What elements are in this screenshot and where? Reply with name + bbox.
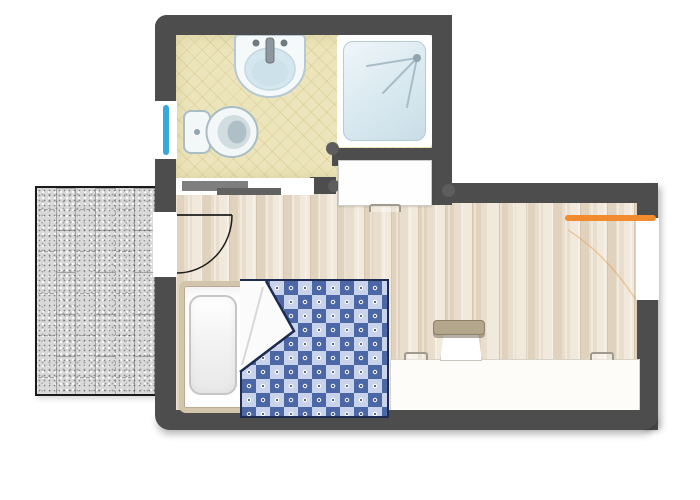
wall-bottom	[155, 410, 658, 430]
pillow	[189, 295, 237, 395]
wall-end-cap	[442, 184, 455, 197]
wall-end-cap	[326, 142, 339, 155]
shower	[337, 35, 432, 147]
blanket-fold	[233, 275, 299, 375]
main-window	[636, 218, 659, 300]
sliding-door-panel-inner	[217, 188, 281, 195]
patio-tile-column	[37, 188, 57, 394]
sink	[233, 35, 307, 101]
chair-backrest	[433, 320, 485, 335]
bathroom-window-glass	[163, 105, 169, 155]
entry-door-opening	[153, 212, 177, 277]
desk	[390, 359, 640, 410]
wall-bathroom-top	[155, 15, 452, 35]
chair-seat	[440, 334, 482, 361]
patio-tile-column	[76, 188, 96, 394]
wall-main-top	[450, 183, 658, 203]
shower-spray-icon	[343, 41, 426, 141]
patio-tile-column	[96, 188, 116, 394]
wardrobe-handle	[369, 204, 401, 212]
window-swing-arc	[560, 222, 644, 306]
desk-bracket-left	[404, 352, 428, 360]
patio-tile-column	[57, 188, 77, 394]
desk-bracket-right	[590, 352, 614, 360]
curtain-rod	[565, 215, 656, 221]
entry-door-swing-icon	[176, 213, 238, 277]
floor-plan-stage	[0, 0, 700, 500]
patio	[35, 186, 157, 396]
patio-tile-column	[116, 188, 136, 394]
bathroom-window	[153, 101, 177, 159]
wall-bathroom-right	[432, 15, 452, 205]
toilet	[183, 104, 259, 160]
wardrobe	[338, 160, 432, 206]
